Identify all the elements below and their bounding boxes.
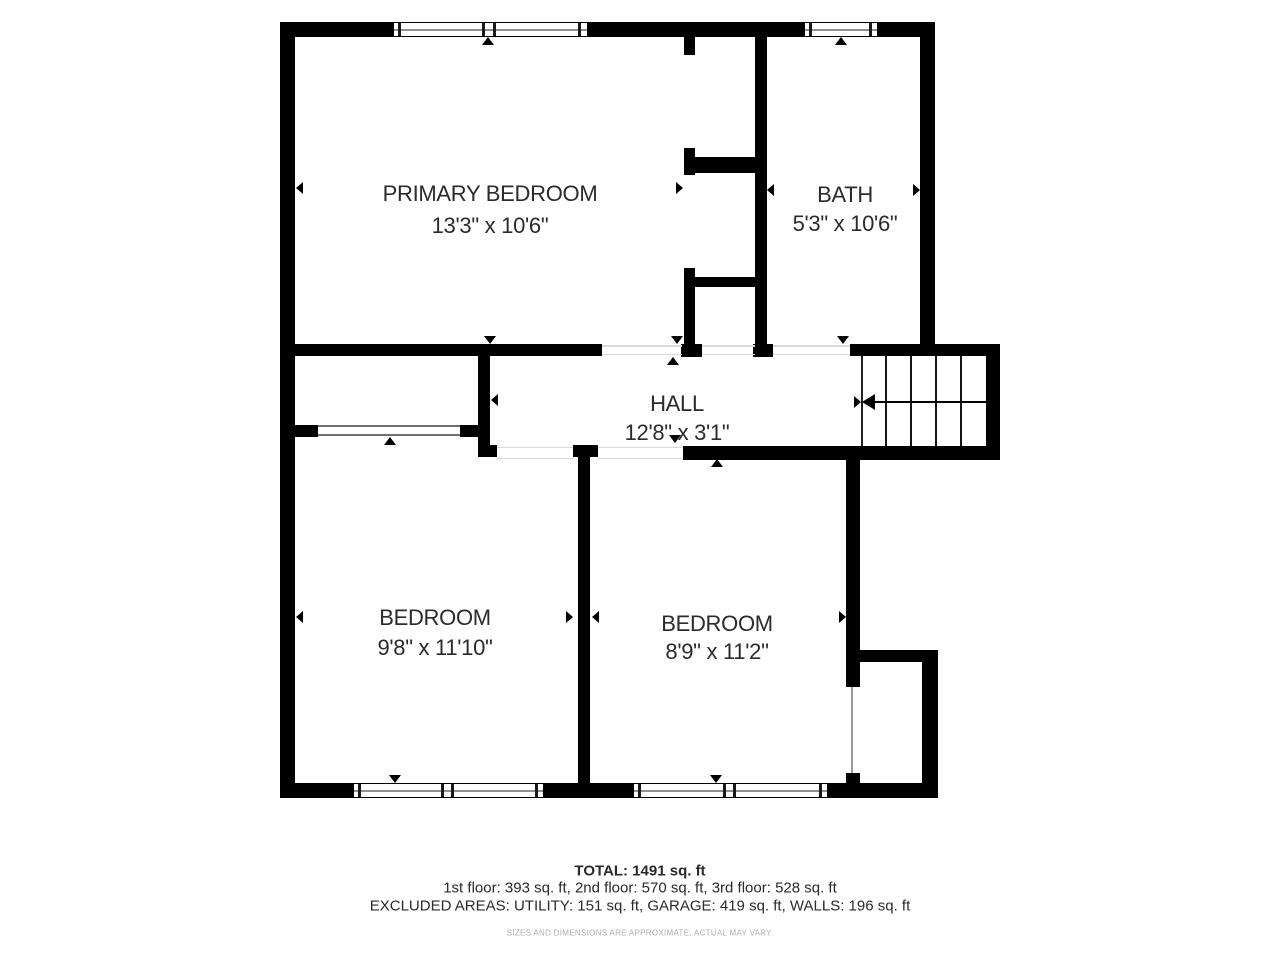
window-post bbox=[723, 784, 726, 797]
dimension-arrow-icon bbox=[839, 611, 846, 623]
window-post bbox=[398, 23, 401, 36]
door-marker-icon bbox=[384, 437, 396, 445]
closet-door-line bbox=[851, 687, 853, 773]
window-glass-line bbox=[805, 29, 877, 31]
dimension-arrow-icon bbox=[711, 459, 723, 467]
floor-plan: PRIMARY BEDROOM 13'3" x 10'6" BATH 5'3" … bbox=[0, 0, 1280, 960]
dimension-arrow-icon bbox=[767, 184, 774, 196]
wall-pb-closet-foot bbox=[681, 344, 702, 357]
window-bath bbox=[804, 22, 878, 37]
window-marker-icon bbox=[389, 775, 401, 783]
room-dims-hall: 12'8" x 3'1" bbox=[625, 420, 730, 446]
window-primary-bedroom bbox=[393, 22, 588, 37]
room-label-bath: BATH bbox=[817, 182, 873, 208]
wall-bath-left-foot bbox=[753, 344, 773, 357]
window-post bbox=[493, 23, 496, 36]
wall-closet-br-right bbox=[922, 650, 938, 798]
window-post bbox=[819, 784, 822, 797]
wall-bedroom-divider bbox=[578, 457, 590, 783]
stairs-direction-line bbox=[873, 401, 986, 403]
room-label-bedroom-right: BEDROOM bbox=[661, 611, 773, 637]
window-bedroom-left bbox=[353, 783, 544, 798]
dimension-arrow-icon bbox=[837, 336, 849, 344]
window-post bbox=[809, 23, 812, 36]
disclaimer-text: SIZES AND DIMENSIONS ARE APPROXIMATE, AC… bbox=[0, 929, 1280, 938]
dimension-arrow-icon bbox=[913, 184, 920, 196]
dimension-arrow-icon bbox=[566, 611, 573, 623]
room-label-primary-bedroom: PRIMARY BEDROOM bbox=[383, 181, 598, 207]
window-post bbox=[869, 23, 872, 36]
threshold-line bbox=[773, 354, 850, 356]
window-post bbox=[733, 784, 736, 797]
room-label-hall: HALL bbox=[650, 391, 704, 417]
wall-stairs-right bbox=[986, 344, 1000, 460]
room-dims-bedroom-right: 8'9" x 11'2" bbox=[665, 639, 768, 665]
threshold-line bbox=[773, 345, 850, 347]
floor-areas-text: 1st floor: 393 sq. ft, 2nd floor: 570 sq… bbox=[0, 880, 1280, 897]
threshold-line bbox=[702, 345, 755, 347]
window-marker-icon bbox=[835, 37, 847, 45]
sliding-door-line bbox=[318, 434, 460, 436]
threshold-line bbox=[497, 447, 573, 449]
threshold-line bbox=[598, 458, 683, 460]
window-glass-line bbox=[354, 790, 543, 792]
window-glass-line bbox=[634, 790, 827, 792]
wall-pb-closet-divider-1 bbox=[684, 157, 756, 173]
dimension-arrow-icon bbox=[296, 182, 303, 194]
wall-stairs-top bbox=[850, 344, 1000, 356]
wall-pb-closet-stub-top bbox=[684, 37, 695, 55]
threshold-line bbox=[598, 447, 683, 449]
wall-closet-strip-bottom-right bbox=[460, 425, 478, 437]
stairs-direction-arrow-icon bbox=[862, 394, 875, 410]
window-post bbox=[451, 784, 454, 797]
room-dims-bedroom-left: 9'8" x 11'10" bbox=[377, 635, 492, 661]
door-marker-icon bbox=[667, 357, 679, 365]
dimension-arrow-icon bbox=[296, 611, 303, 623]
threshold-line bbox=[602, 345, 682, 347]
wall-exterior-left bbox=[280, 22, 295, 798]
dimension-arrow-icon bbox=[484, 336, 496, 344]
window-marker-icon bbox=[710, 775, 722, 783]
wall-closet-br-door-stub bbox=[846, 773, 860, 788]
sliding-door-line bbox=[318, 425, 460, 427]
dimension-arrow-icon bbox=[491, 394, 498, 406]
window-glass-line bbox=[394, 29, 587, 31]
dimension-arrow-icon bbox=[592, 611, 599, 623]
window-post bbox=[638, 784, 641, 797]
wall-exterior-right-upper bbox=[920, 22, 935, 356]
dimension-arrow-icon bbox=[671, 336, 683, 344]
window-bedroom-right bbox=[633, 783, 828, 798]
wall-closet-strip-bottom-left bbox=[280, 425, 318, 437]
window-post bbox=[535, 784, 538, 797]
threshold-line bbox=[602, 354, 682, 356]
room-dims-primary-bedroom: 13'3" x 10'6" bbox=[432, 213, 549, 239]
excluded-areas-text: EXCLUDED AREAS: UTILITY: 151 sq. ft, GAR… bbox=[0, 898, 1280, 915]
wall-bath-left bbox=[755, 37, 767, 344]
wall-closet-strip-right bbox=[478, 344, 490, 445]
dimension-arrow-icon bbox=[676, 182, 683, 194]
wall-primary-bedroom-bottom bbox=[280, 344, 602, 356]
wall-hall-bottom bbox=[683, 446, 1000, 460]
room-dims-bath: 5'3" x 10'6" bbox=[793, 211, 898, 237]
wall-bedroom-divider-cap bbox=[573, 445, 598, 457]
threshold-line bbox=[497, 458, 573, 460]
window-post bbox=[358, 784, 361, 797]
room-label-bedroom-left: BEDROOM bbox=[379, 605, 491, 631]
window-marker-icon bbox=[482, 37, 494, 45]
total-area-text: TOTAL: 1491 sq. ft bbox=[0, 863, 1280, 880]
dimension-arrow-icon bbox=[854, 396, 861, 408]
window-post bbox=[441, 784, 444, 797]
wall-closet-strip-foot bbox=[478, 445, 497, 457]
window-post bbox=[578, 23, 581, 36]
wall-pb-closet-divider-2 bbox=[684, 277, 756, 287]
window-post bbox=[482, 23, 485, 36]
threshold-line bbox=[702, 354, 755, 356]
